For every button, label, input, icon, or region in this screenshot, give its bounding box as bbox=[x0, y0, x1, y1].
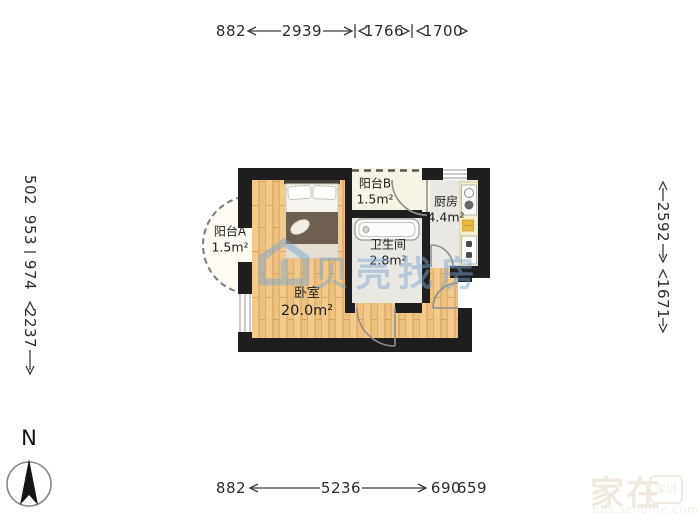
room-label-balcony-b: 阳台B 1.5m² bbox=[356, 177, 393, 208]
floorplan-page: 882 2939 1766 1700 882 5236 690 659 502 … bbox=[0, 0, 700, 524]
dim-top-1700: 1700 bbox=[423, 22, 463, 40]
window-left-bedroom bbox=[238, 294, 252, 332]
window-top-kitchen bbox=[443, 168, 467, 180]
room-label-balcony-a: 阳台A 1.5m² bbox=[211, 225, 248, 256]
dim-top-1766: 1766 bbox=[364, 22, 404, 40]
dim-right-1671: 1671 bbox=[654, 279, 672, 319]
dim-bottom-882: 882 bbox=[216, 479, 246, 497]
dim-top-2939: 2939 bbox=[282, 22, 322, 40]
dim-top-882: 882 bbox=[216, 22, 246, 40]
watermark-corner-url: bbs.szhome.com bbox=[592, 503, 699, 516]
watermark-corner-seal-text: 深圳 bbox=[655, 481, 677, 497]
watermark-beike-text: 贝壳找房 bbox=[314, 246, 482, 297]
dim-left-974: 974 bbox=[21, 260, 39, 290]
dim-right-2592: 2592 bbox=[654, 202, 672, 242]
compass-north-label: N bbox=[21, 426, 37, 450]
room-label-kitchen: 厨房 4.4m² bbox=[427, 195, 464, 226]
dim-left-953: 953 bbox=[21, 215, 39, 245]
dim-left-2237: 2237 bbox=[21, 308, 39, 348]
dim-left-502: 502 bbox=[21, 175, 39, 205]
dim-bottom-5236: 5236 bbox=[321, 479, 361, 497]
dim-bottom-659: 659 bbox=[457, 479, 487, 497]
compass-icon bbox=[7, 459, 51, 506]
